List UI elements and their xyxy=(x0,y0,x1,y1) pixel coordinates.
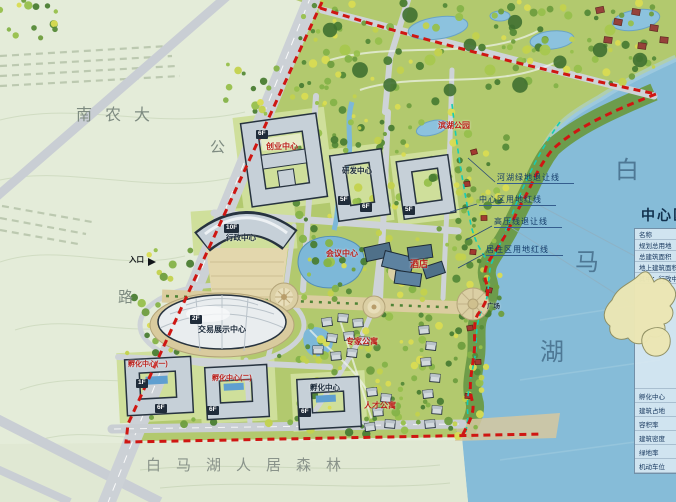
legend-row: 绿地率 xyxy=(635,445,676,459)
forest-band xyxy=(0,440,468,502)
legend-row: 名称 xyxy=(635,229,676,240)
legend-row: 容积率 xyxy=(635,417,676,431)
legend-row: 孵化中心 xyxy=(635,389,676,403)
legend-row: 地上建筑面积 xyxy=(635,262,676,273)
expo-dome xyxy=(150,293,294,357)
legend-row: 机动车位 xyxy=(635,459,676,473)
legend-title: 中心区经济技术指标 xyxy=(641,205,676,225)
roundabout-east xyxy=(363,296,385,318)
legend-table: 名称 规划总用地 总建筑面积 地上建筑面积 其中：行政中心 孵化中心 建筑占地 … xyxy=(634,228,676,474)
legend-hidden-rows xyxy=(635,284,676,389)
legend-row: 建筑密度 xyxy=(635,431,676,445)
map-graphics xyxy=(0,0,676,502)
legend-row: 其中：行政中心 xyxy=(635,273,676,284)
legend-row: 规划总用地 xyxy=(635,240,676,251)
startup-center-buildings xyxy=(241,113,328,207)
master-plan-map: 名称 规划总用地 总建筑面积 地上建筑面积 其中：行政中心 孵化中心 建筑占地 … xyxy=(0,0,676,502)
legend-row: 建筑占地 xyxy=(635,403,676,417)
legend-row: 总建筑面积 xyxy=(635,251,676,262)
